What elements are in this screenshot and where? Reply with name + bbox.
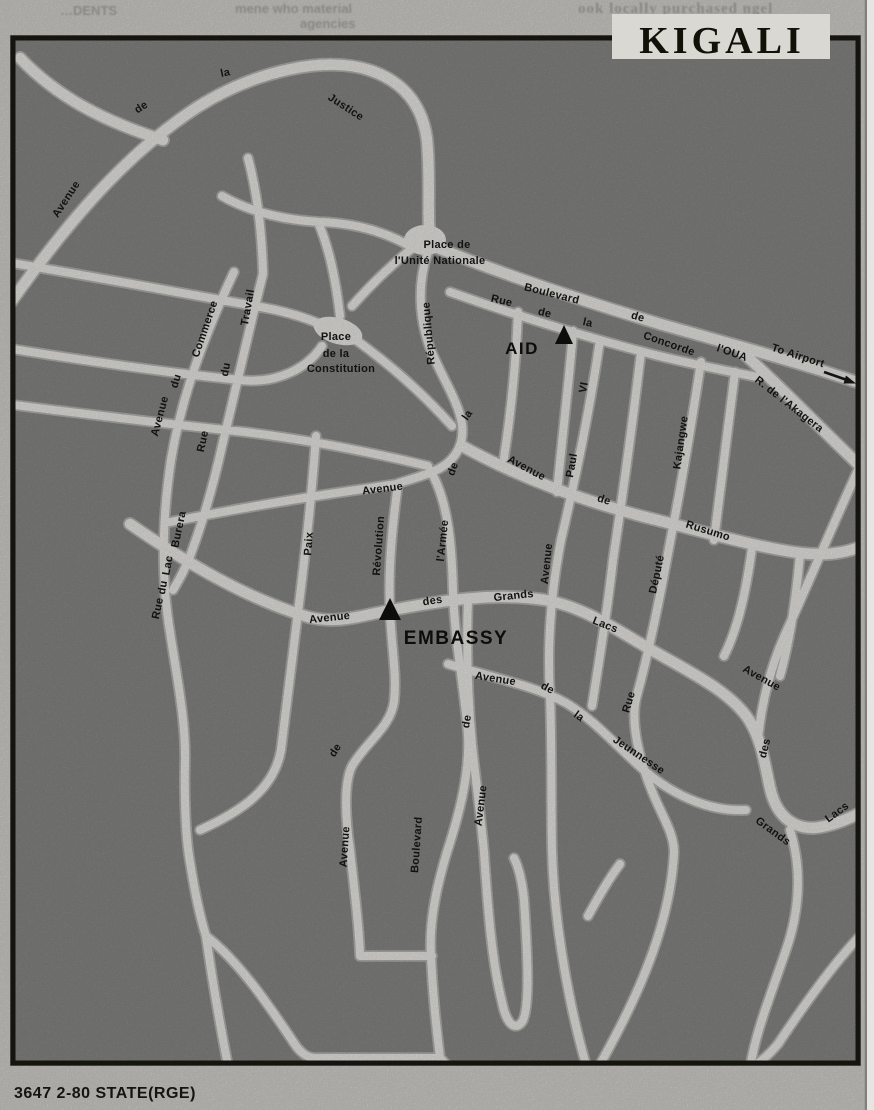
- kigali-map: …DENTS mene who material agencies ook lo…: [0, 0, 874, 1110]
- bleed-fragment-middle: mene who material: [235, 1, 352, 16]
- aid-marker-label: AID: [505, 339, 539, 358]
- street-label-du: du: [219, 362, 233, 378]
- street-label-de-la: de la: [323, 348, 350, 360]
- street-label-de: de: [460, 714, 474, 729]
- street-label-place-de: Place de: [423, 239, 470, 251]
- street-label-du: du: [156, 580, 170, 596]
- street-label-place: Place: [321, 331, 351, 343]
- page-title: KIGALI: [639, 20, 804, 62]
- street-label-l-unit-nationale: l'Unité Nationale: [395, 255, 486, 267]
- street-label-constitution: Constitution: [307, 363, 375, 375]
- scanned-map-page: …DENTS mene who material agencies ook lo…: [0, 0, 874, 1110]
- bleed-fragment-left: …DENTS: [60, 3, 117, 18]
- street-label-paix: Paix: [302, 531, 316, 556]
- bleed-fragment-middle2: agencies: [300, 16, 356, 31]
- embassy-marker-label: EMBASSY: [404, 628, 508, 649]
- map-caption: 3647 2-80 STATE(RGE): [14, 1085, 196, 1102]
- street-label-vi: VI: [577, 381, 591, 394]
- page-edge-margin: [867, 0, 874, 1110]
